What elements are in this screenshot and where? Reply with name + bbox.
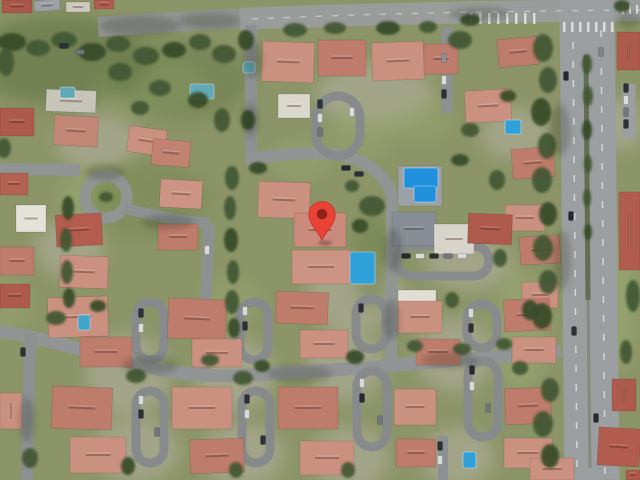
- photo-grain-overlay: [0, 0, 640, 480]
- pin-dot: [317, 209, 327, 219]
- satellite-map[interactable]: [0, 0, 640, 480]
- map-viewport: [0, 0, 640, 480]
- pin-shadow: [318, 241, 332, 246]
